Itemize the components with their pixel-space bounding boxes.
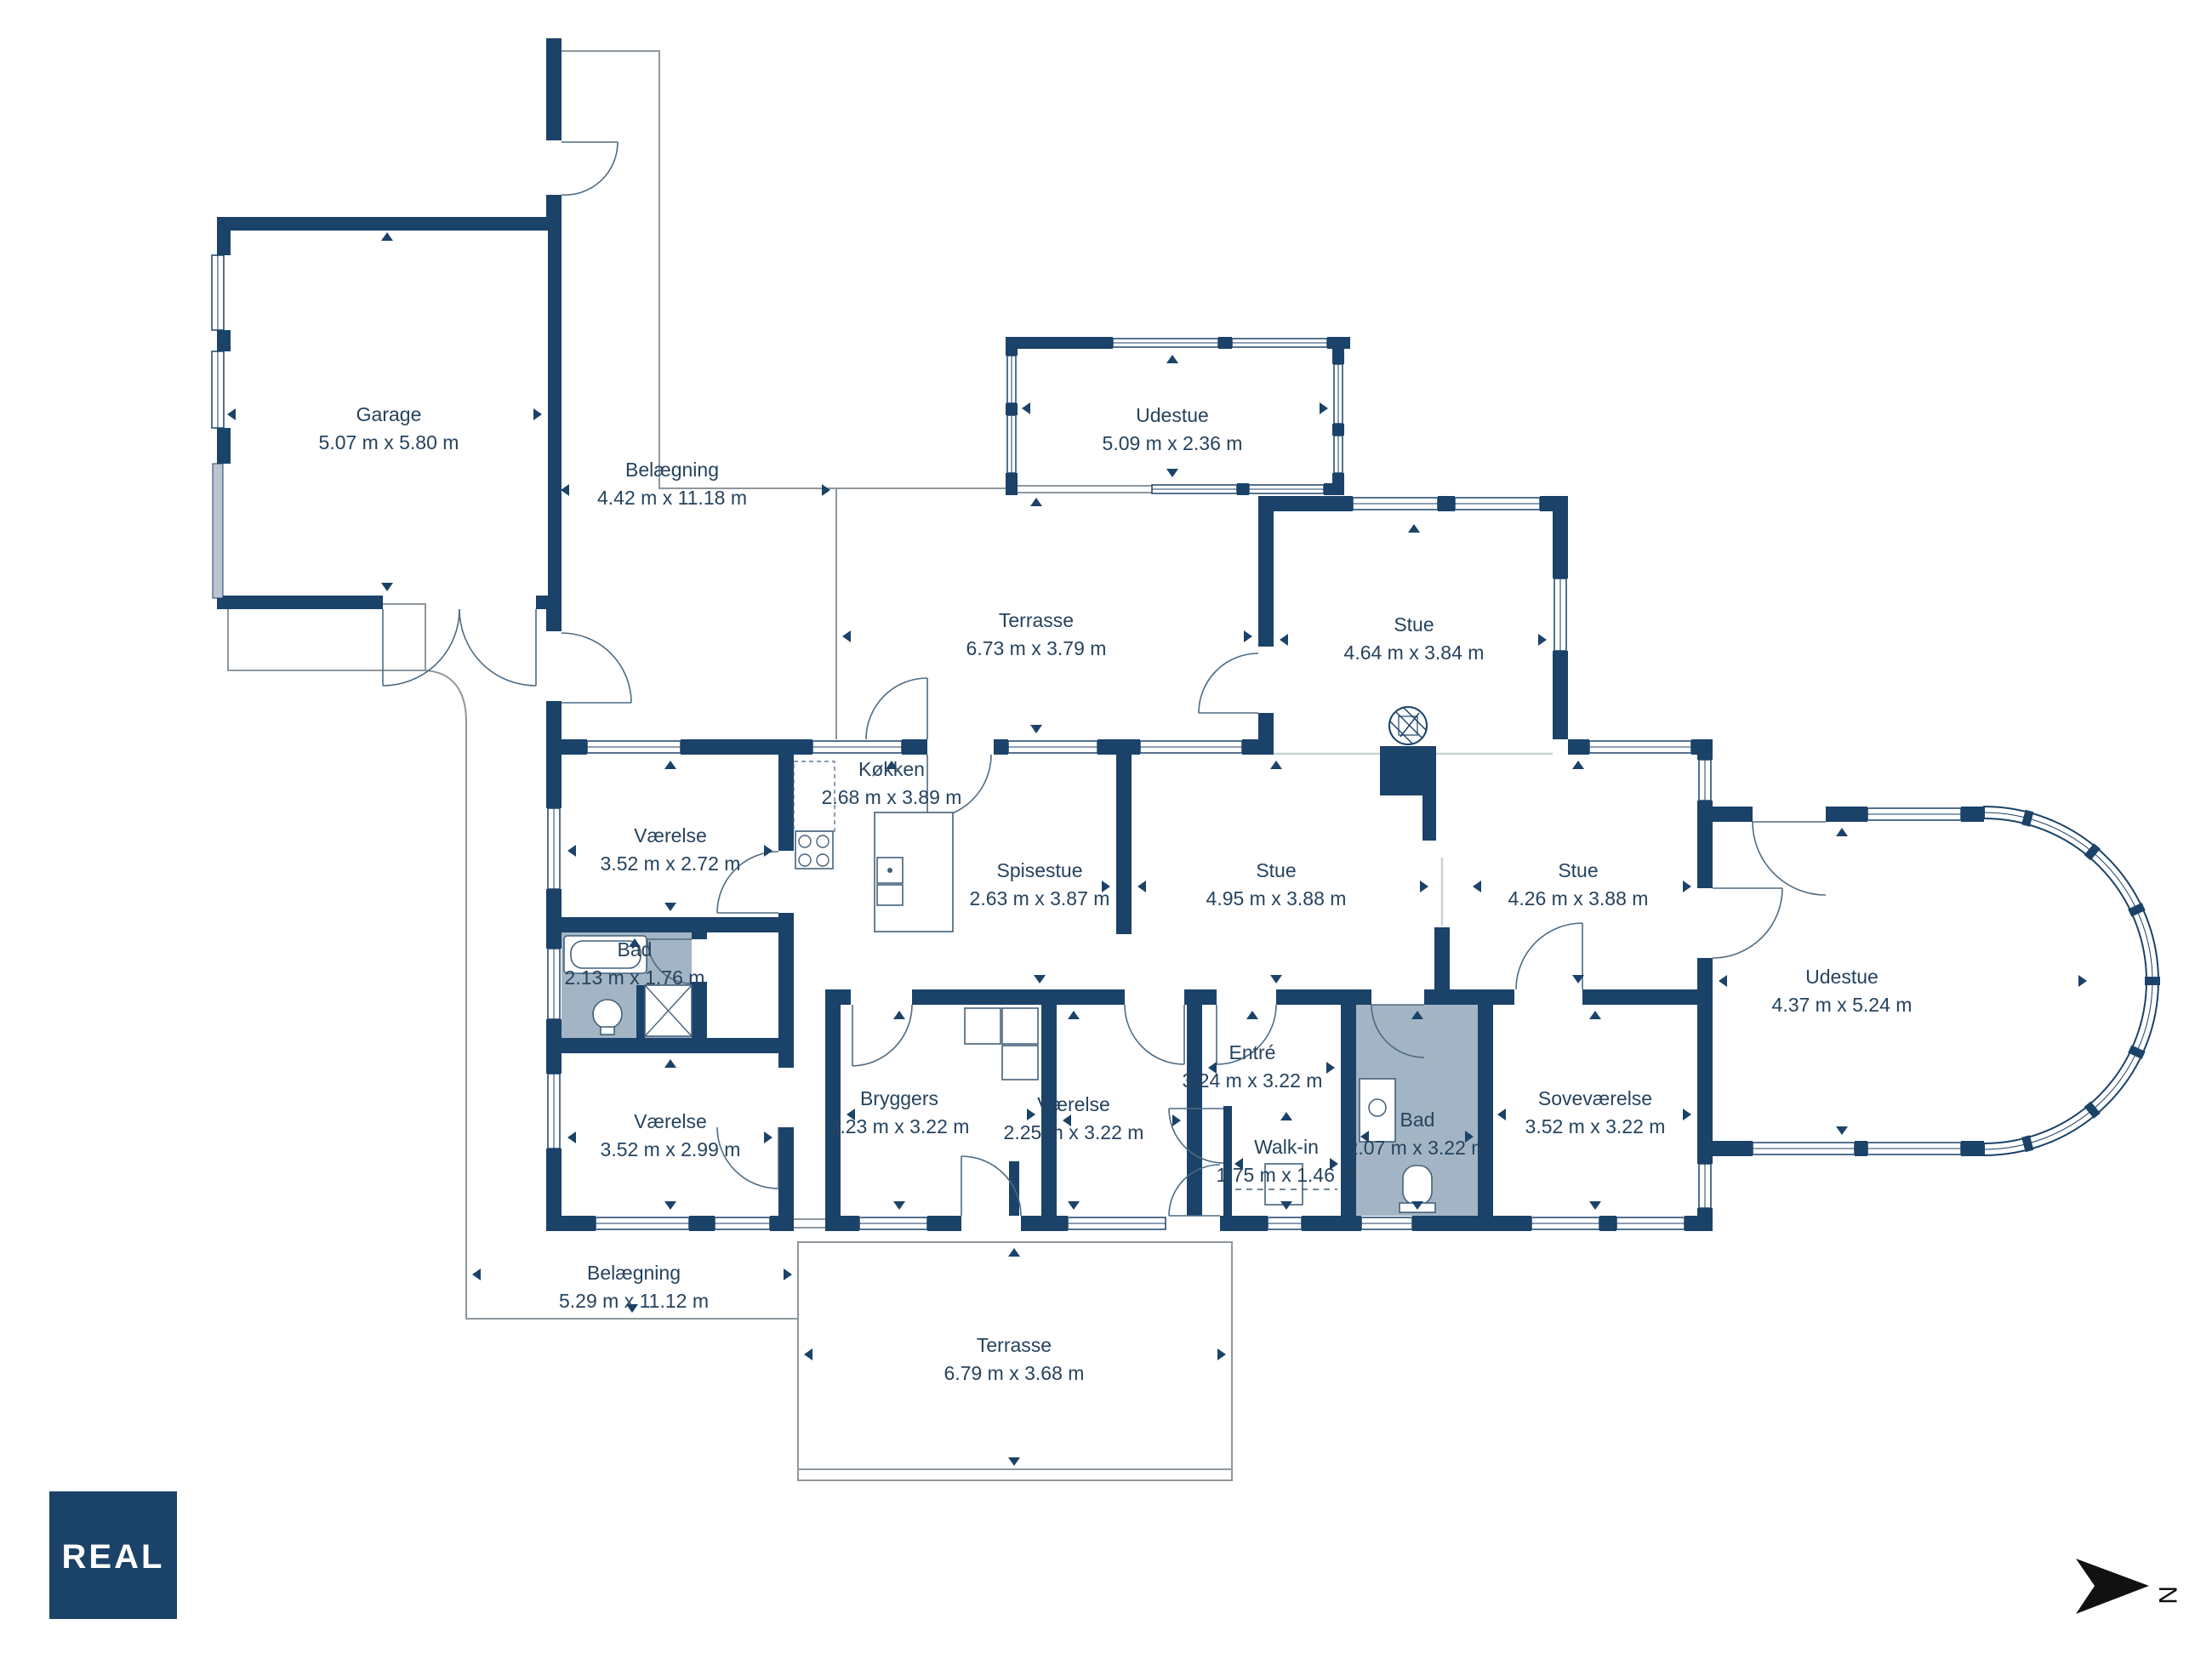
room-label-entre: Entré xyxy=(1229,1041,1276,1063)
wall xyxy=(1713,1141,1753,1156)
wall xyxy=(1332,337,1344,364)
wall xyxy=(546,195,562,217)
measure-arrow xyxy=(664,1201,676,1210)
vanity xyxy=(1360,1079,1395,1142)
wall xyxy=(1237,483,1249,495)
door-swing-arc xyxy=(1516,923,1582,989)
wall xyxy=(1713,807,1753,822)
wall xyxy=(825,1216,859,1231)
bay-window-mullion xyxy=(2026,811,2030,825)
measure-arrow xyxy=(1030,725,1042,733)
wall xyxy=(1220,1216,1268,1231)
measure-arrow xyxy=(1420,881,1428,892)
room-dims-stue-2: 4.26 m x 3.88 m xyxy=(1508,887,1649,909)
measure-arrow xyxy=(1683,1109,1691,1120)
measure-arrow xyxy=(1538,634,1547,646)
wall xyxy=(636,985,645,1038)
wall xyxy=(1961,1141,1984,1156)
dryer xyxy=(1002,1008,1038,1044)
room-label-udestue-top: Udestue xyxy=(1136,404,1209,426)
wall xyxy=(217,330,231,351)
room-dims-entre: 3.24 m x 3.22 m xyxy=(1183,1069,1323,1092)
wall xyxy=(1184,989,1217,1005)
floor-plan-page: Garage 5.07 m x 5.80 m Belægning 4.42 m … xyxy=(0,0,2212,1659)
door-swing-arc xyxy=(1753,822,1826,895)
measure-arrow xyxy=(1022,402,1030,414)
wood-stove-icon xyxy=(1389,707,1427,744)
room-label-koekken: Køkken xyxy=(858,758,925,780)
wall xyxy=(546,739,562,808)
room-dims-belaegning-top: 4.42 m x 11.18 m xyxy=(597,487,747,509)
measure-arrow xyxy=(1034,975,1046,983)
wall xyxy=(1553,651,1568,739)
room-dims-vaerelse-1: 3.52 m x 2.72 m xyxy=(601,852,741,875)
room-dims-koekken: 2.68 m x 3.89 m xyxy=(822,786,962,808)
measure-arrow xyxy=(764,1132,772,1143)
wall xyxy=(778,913,794,1068)
room-label-belaegning-bottom: Belægning xyxy=(587,1262,681,1284)
wall xyxy=(1424,989,1514,1005)
room-dims-bryggers: 3.23 m x 3.22 m xyxy=(829,1115,970,1137)
door-swing-arc xyxy=(1125,1005,1184,1064)
measure-arrow xyxy=(381,232,393,241)
room-dims-walk-in: 1.75 m x 1.46 m xyxy=(1217,1164,1357,1186)
wall xyxy=(1218,337,1232,349)
wall xyxy=(1582,989,1713,1005)
wall xyxy=(1324,483,1344,495)
wall xyxy=(546,701,562,739)
wall xyxy=(546,38,562,140)
room-label-bryggers: Bryggers xyxy=(860,1087,938,1109)
wall xyxy=(1006,337,1018,356)
measure-arrow xyxy=(1172,1115,1181,1126)
paving-outline xyxy=(798,1242,1232,1480)
wall xyxy=(692,982,707,1038)
measure-arrow xyxy=(227,408,236,420)
washer xyxy=(965,1008,1001,1044)
bay-window-centerline xyxy=(1984,812,2152,1149)
bay-window-ring xyxy=(1984,807,2158,1155)
room-dims-bad-1: 2.13 m x 1.76 m xyxy=(565,966,705,989)
toilet-2 xyxy=(1403,1166,1432,1205)
room-dims-stue-1: 4.95 m x 3.88 m xyxy=(1206,887,1347,909)
measure-arrow xyxy=(842,630,851,642)
room-label-vaerelse-3: Værelse xyxy=(1037,1093,1110,1115)
door-swing-arc xyxy=(866,678,927,739)
brand-logo: REAL xyxy=(49,1491,177,1619)
measure-arrow xyxy=(1497,1109,1506,1120)
wall xyxy=(1006,483,1018,495)
wall xyxy=(562,917,778,932)
measure-arrow xyxy=(1719,975,1727,987)
wall xyxy=(1434,927,1450,989)
door-swing-arc xyxy=(383,609,459,686)
wall xyxy=(548,217,562,609)
wall xyxy=(1826,807,1867,822)
measure-arrow xyxy=(1244,630,1252,642)
wall xyxy=(927,1216,961,1231)
measure-arrow xyxy=(1027,1109,1035,1120)
north-arrow-icon: N xyxy=(2076,1559,2181,1614)
room-label-garage: Garage xyxy=(356,403,422,425)
utility-counter xyxy=(1002,1046,1038,1080)
measure-arrow xyxy=(1320,402,1328,414)
room-label-bad-2: Bad xyxy=(1400,1109,1435,1131)
walls xyxy=(213,38,2160,1231)
wall xyxy=(1422,795,1436,841)
measure-arrow xyxy=(533,408,542,420)
measure-arrow xyxy=(804,1348,812,1360)
measure-arrow xyxy=(567,1132,576,1143)
measure-arrow xyxy=(664,761,676,769)
room-label-sovevaerelse: Soveværelse xyxy=(1538,1087,1652,1109)
wall xyxy=(1006,403,1018,415)
wall xyxy=(217,428,231,464)
measure-arrow xyxy=(664,1059,676,1068)
room-label-vaerelse-1: Værelse xyxy=(634,824,707,847)
wall xyxy=(217,217,231,255)
room-label-stue-2: Stue xyxy=(1558,859,1598,881)
measure-arrow xyxy=(1246,1011,1258,1019)
measure-arrow xyxy=(1280,634,1288,646)
toilet-tank xyxy=(601,1027,614,1035)
wall xyxy=(1961,807,1984,822)
wall xyxy=(546,1019,562,1074)
room-dims-vaerelse-3: 2.25 m x 3.22 m xyxy=(1004,1121,1144,1143)
room-dims-belaegning-bottom: 5.29 m x 11.12 m xyxy=(559,1290,709,1312)
measure-arrow xyxy=(1030,498,1042,506)
measure-arrow xyxy=(893,1201,905,1210)
measure-arrow xyxy=(1217,1348,1226,1360)
room-dims-stue-top: 4.64 m x 3.84 m xyxy=(1344,641,1485,664)
wall xyxy=(912,989,1125,1005)
measure-arrow xyxy=(1270,975,1282,983)
room-dims-sovevaerelse: 3.52 m x 3.22 m xyxy=(1525,1115,1666,1137)
wall xyxy=(1855,1141,1867,1156)
measure-arrow xyxy=(1280,1112,1292,1120)
wall xyxy=(1187,1005,1202,1216)
door-swing-arc xyxy=(1713,888,1782,958)
room-dims-spisestue: 2.63 m x 3.87 m xyxy=(970,887,1110,909)
wall xyxy=(1438,496,1455,511)
measure-arrow xyxy=(1270,761,1282,769)
door-swing-arc xyxy=(1199,653,1258,713)
measure-arrow xyxy=(664,903,676,911)
wall xyxy=(1697,739,1713,760)
measure-arrow xyxy=(764,845,772,857)
measure-arrow xyxy=(472,1268,481,1280)
wall xyxy=(1258,496,1353,511)
wall xyxy=(1599,1216,1616,1231)
wall xyxy=(1006,337,1113,349)
room-dims-udestue-right: 4.37 m x 5.24 m xyxy=(1772,994,1913,1016)
room-label-spisestue: Spisestue xyxy=(996,859,1082,881)
measure-arrow xyxy=(1836,828,1848,836)
measure-arrow xyxy=(1326,1062,1335,1074)
wall xyxy=(562,739,587,755)
measure-arrow xyxy=(1473,881,1481,892)
toilet xyxy=(593,1000,622,1029)
wall xyxy=(1258,496,1274,647)
measure-arrow xyxy=(1166,355,1178,363)
room-label-terrasse-bottom: Terrasse xyxy=(977,1334,1052,1356)
measure-arrow xyxy=(1008,1457,1020,1466)
wall xyxy=(994,739,1008,755)
bay-window-mullion xyxy=(2129,907,2143,914)
room-label-udestue-right: Udestue xyxy=(1805,966,1878,988)
measure-arrow xyxy=(1280,1201,1292,1210)
measure-arrow xyxy=(567,845,576,857)
measure-arrow xyxy=(893,1011,905,1019)
room-dims-vaerelse-2: 3.52 m x 2.99 m xyxy=(601,1138,741,1160)
wall xyxy=(1302,1216,1361,1231)
measure-arrow xyxy=(1572,761,1584,769)
measure-arrow xyxy=(1166,469,1178,477)
bay-window-mullion xyxy=(2026,1137,2030,1151)
floor-plan: Garage 5.07 m x 5.80 m Belægning 4.42 m … xyxy=(0,0,2212,1659)
door-swing-arc xyxy=(459,609,536,686)
wall xyxy=(217,217,562,231)
measure-arrow xyxy=(2078,975,2087,987)
sink-faucet xyxy=(887,868,892,873)
measure-arrow xyxy=(1137,881,1146,892)
island-cabinet xyxy=(877,885,903,905)
wall xyxy=(778,739,794,851)
room-label-stue-top: Stue xyxy=(1394,613,1434,636)
wall xyxy=(1478,1005,1493,1216)
wall xyxy=(1116,739,1132,934)
wall xyxy=(1412,1216,1531,1231)
room-dims-bad-2: 2.07 m x 3.22 m xyxy=(1348,1137,1488,1159)
wall xyxy=(1242,739,1274,755)
wall xyxy=(692,932,707,939)
room-label-walk-in: Walk-in xyxy=(1254,1136,1319,1158)
measure-arrow xyxy=(1589,1201,1601,1210)
wall xyxy=(1258,713,1274,739)
measure-arrow xyxy=(822,484,830,496)
measure-arrow xyxy=(784,1268,792,1280)
brand-logo-text: REAL xyxy=(62,1538,165,1576)
wall xyxy=(1685,1216,1713,1231)
measure-arrow xyxy=(1408,524,1420,533)
wall xyxy=(1568,739,1589,755)
wall xyxy=(770,1216,794,1231)
room-label-terrasse-top: Terrasse xyxy=(999,609,1074,631)
room-label-belaegning-top: Belægning xyxy=(625,459,719,481)
bay-window-mullion xyxy=(2129,1049,2143,1056)
wall xyxy=(562,1038,778,1053)
measure-arrow xyxy=(1836,1126,1848,1135)
wall xyxy=(1697,958,1713,1164)
room-label-stue-1: Stue xyxy=(1256,859,1296,881)
room-dims-udestue-top: 5.09 m x 2.36 m xyxy=(1103,432,1243,454)
door-swing-arc xyxy=(562,633,631,703)
measure-arrow xyxy=(381,583,393,591)
wall xyxy=(825,989,851,1005)
wall xyxy=(546,609,562,631)
room-label-bad-1: Bad xyxy=(618,938,653,961)
door-arcs xyxy=(383,142,1826,1216)
north-label: N xyxy=(2153,1586,2181,1605)
wall xyxy=(546,1216,596,1231)
wall xyxy=(689,1216,715,1231)
door-swing-arc xyxy=(562,142,618,195)
wall xyxy=(1553,496,1568,579)
wall xyxy=(546,889,562,949)
wall xyxy=(536,596,562,609)
wall xyxy=(1276,989,1371,1005)
wall xyxy=(825,1005,841,1216)
paving-outline xyxy=(555,51,836,739)
wall xyxy=(902,739,927,755)
wall xyxy=(778,1127,794,1231)
measure-arrow xyxy=(1008,1248,1020,1257)
room-dims-terrasse-top: 6.73 m x 3.79 m xyxy=(966,637,1107,659)
room-label-vaerelse-2: Værelse xyxy=(634,1110,707,1132)
measure-arrow xyxy=(1683,881,1691,892)
door-swing-arc xyxy=(852,1005,912,1066)
measure-arrow xyxy=(1068,1201,1080,1210)
room-dims-garage: 5.07 m x 5.80 m xyxy=(319,431,459,453)
paving-outline xyxy=(228,604,425,670)
measure-arrow xyxy=(1589,1011,1601,1019)
measure-arrow xyxy=(1068,1011,1080,1019)
wall xyxy=(1697,801,1713,888)
room-dims-terrasse-bottom: 6.79 m x 3.68 m xyxy=(944,1362,1085,1384)
wall xyxy=(1021,1216,1068,1231)
garage-door xyxy=(213,464,223,598)
wall xyxy=(217,596,383,609)
wall xyxy=(1332,424,1344,436)
measure-arrow xyxy=(561,484,569,496)
